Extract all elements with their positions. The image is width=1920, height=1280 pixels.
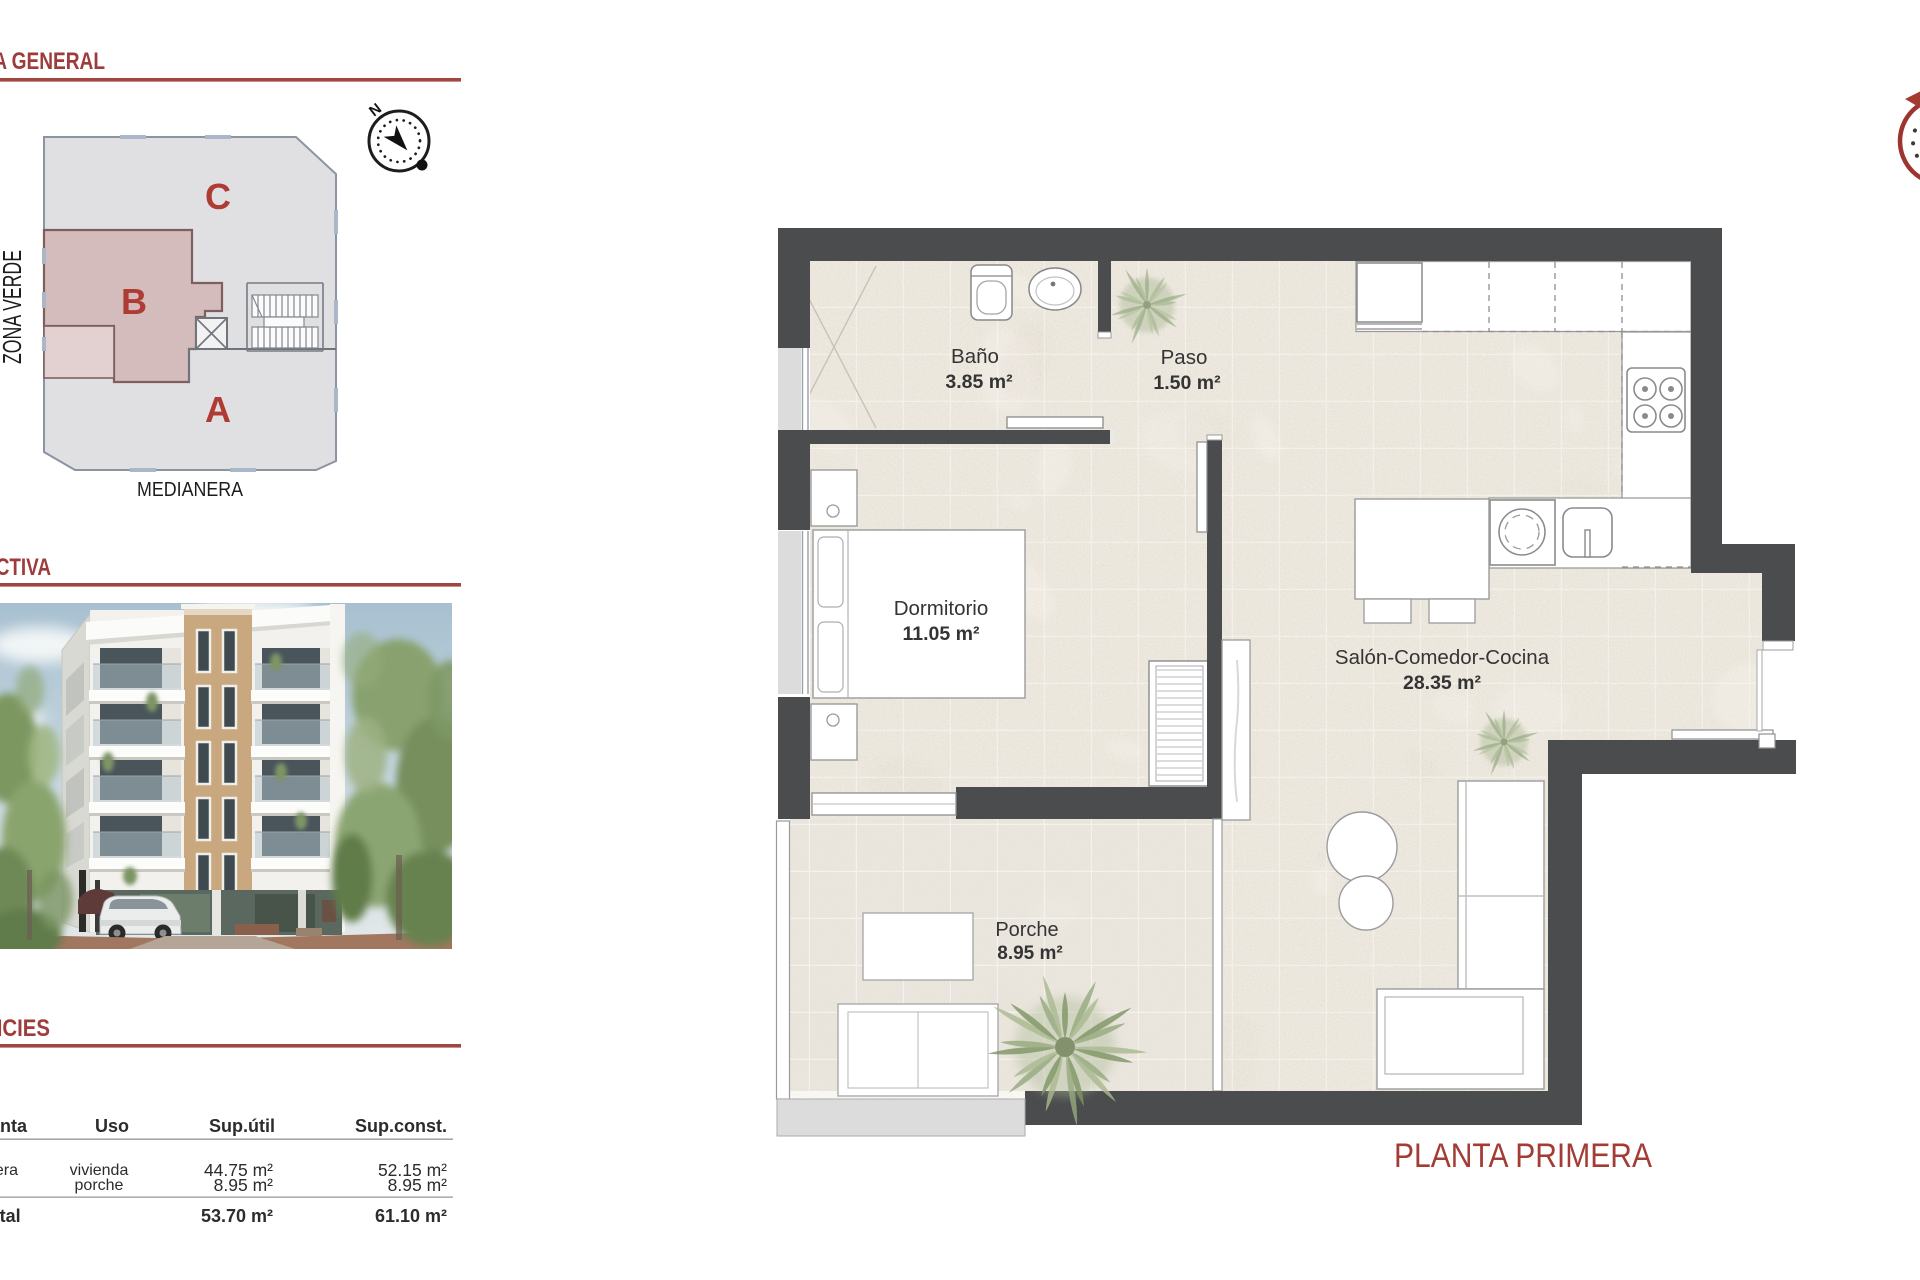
svg-text:PLANTA PRIMERA: PLANTA PRIMERA	[1394, 1137, 1652, 1175]
svg-text:8.95 m²: 8.95 m²	[214, 1175, 273, 1195]
svg-text:Uso: Uso	[95, 1116, 129, 1136]
svg-text:ZONA VERDE: ZONA VERDE	[0, 250, 27, 364]
svg-text:8.95 m²: 8.95 m²	[997, 943, 1062, 964]
svg-text:8.95 m²: 8.95 m²	[388, 1175, 447, 1195]
svg-text:C: C	[205, 176, 231, 217]
svg-text:Sup.const.: Sup.const.	[355, 1116, 447, 1136]
svg-text:B: B	[121, 281, 147, 322]
svg-text:PLANTA GENERAL: PLANTA GENERAL	[0, 48, 105, 75]
svg-text:53.70 m²: 53.70 m²	[201, 1206, 273, 1226]
svg-text:porche: porche	[75, 1177, 124, 1194]
svg-text:Salón-Comedor-Cocina: Salón-Comedor-Cocina	[1335, 646, 1550, 669]
svg-text:Sup.útil: Sup.útil	[209, 1116, 275, 1136]
svg-text:Total: Total	[0, 1206, 21, 1226]
svg-text:Porche: Porche	[995, 919, 1058, 941]
svg-text:Baño: Baño	[951, 345, 999, 368]
svg-text:MEDIANERA: MEDIANERA	[137, 478, 243, 501]
svg-text:11.05 m²: 11.05 m²	[903, 623, 980, 645]
svg-text:Planta: Planta	[0, 1116, 28, 1136]
svg-text:A: A	[205, 389, 231, 430]
svg-text:Dormitorio: Dormitorio	[894, 597, 989, 620]
svg-text:Paso: Paso	[1161, 346, 1208, 369]
svg-text:1.50 m²: 1.50 m²	[1153, 372, 1221, 394]
svg-text:3.85 m²: 3.85 m²	[945, 371, 1013, 393]
svg-text:61.10 m²: 61.10 m²	[375, 1206, 447, 1226]
svg-text:28.35 m²: 28.35 m²	[1403, 672, 1482, 694]
svg-text:PERSPECTIVA: PERSPECTIVA	[0, 554, 51, 581]
svg-text:Primera: Primera	[0, 1162, 18, 1179]
svg-text:SUPERFICIES: SUPERFICIES	[0, 1015, 50, 1042]
